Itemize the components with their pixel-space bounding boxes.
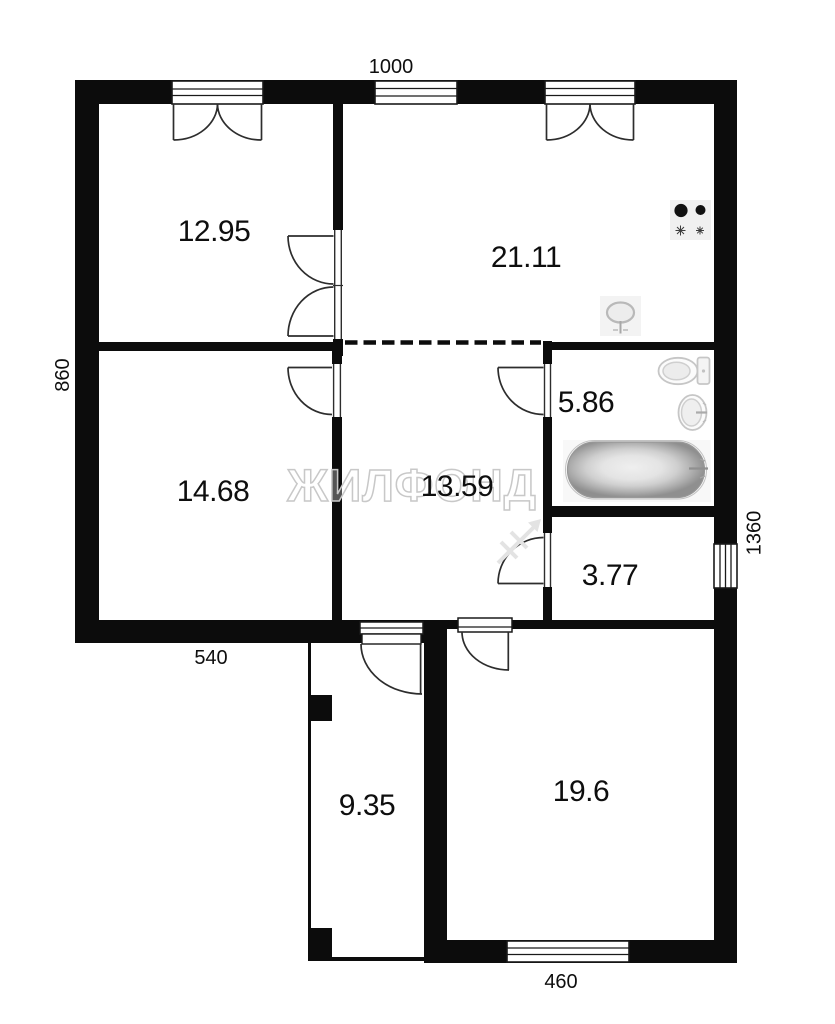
svg-text:14.68: 14.68 <box>177 475 250 508</box>
svg-text:13.59: 13.59 <box>421 470 494 503</box>
svg-text:3.77: 3.77 <box>582 559 638 592</box>
svg-text:ЖИЛФОНД: ЖИЛФОНД <box>286 460 537 511</box>
svg-text:1360: 1360 <box>744 511 766 556</box>
svg-text:9.35: 9.35 <box>339 789 395 822</box>
svg-text:460: 460 <box>544 971 577 993</box>
svg-text:540: 540 <box>194 647 227 669</box>
svg-text:1000: 1000 <box>369 56 414 78</box>
svg-text:860: 860 <box>52 358 74 391</box>
svg-text:21.11: 21.11 <box>491 241 561 274</box>
svg-text:12.95: 12.95 <box>178 215 251 248</box>
svg-text:5.86: 5.86 <box>558 386 614 419</box>
svg-text:19.6: 19.6 <box>553 775 609 808</box>
